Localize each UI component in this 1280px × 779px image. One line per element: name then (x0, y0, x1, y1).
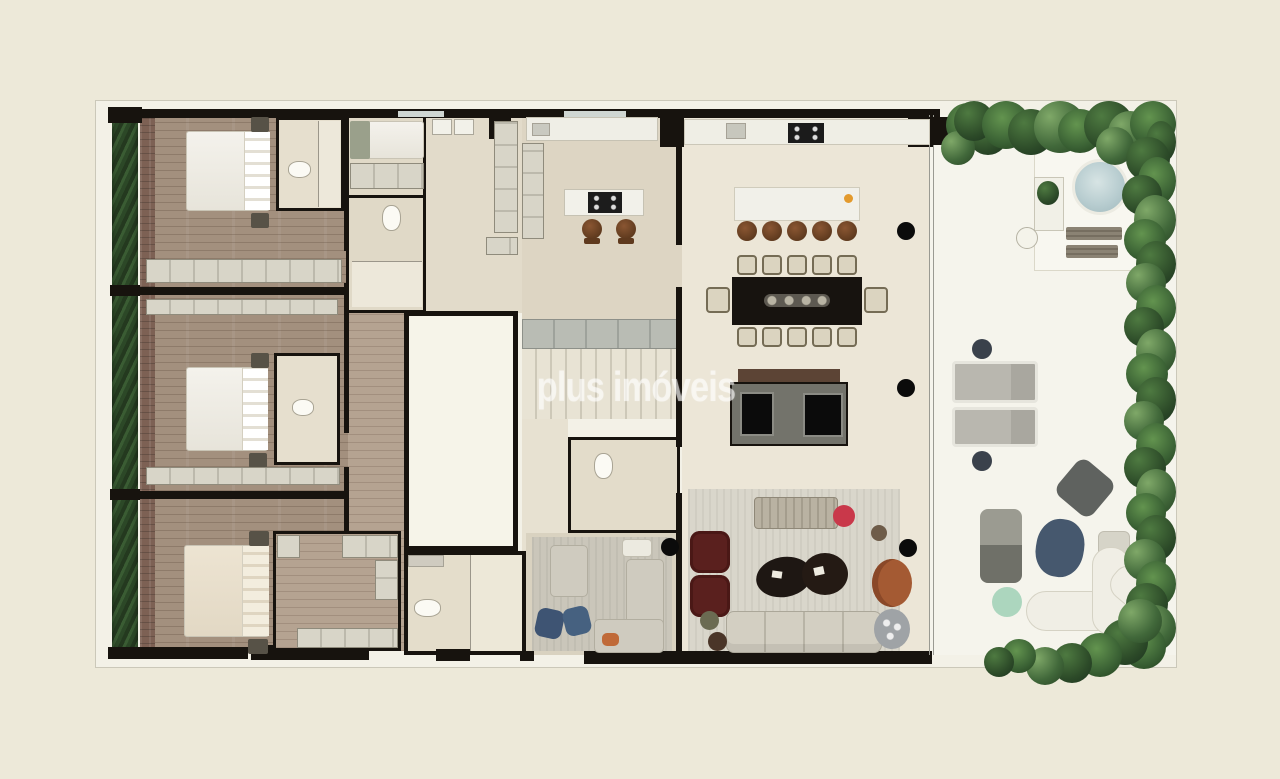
column (899, 539, 917, 557)
sun-lounger (952, 361, 1038, 403)
nightstand (248, 639, 268, 654)
wardrobe-unit (342, 535, 398, 558)
wall-suite-divider-1 (140, 287, 346, 295)
toilet (382, 205, 401, 231)
wall-suite-divider-2 (140, 491, 346, 499)
coffee-table (802, 553, 848, 595)
bar-stool (737, 221, 757, 241)
planter-pot (1016, 227, 1038, 249)
island-stool (582, 219, 602, 239)
stair-cabinet (522, 319, 680, 349)
wall-corridor-1 (344, 115, 349, 251)
ribbed-bench (754, 497, 838, 529)
column (897, 222, 915, 240)
jacuzzi (1072, 159, 1128, 215)
island-stool (616, 219, 636, 239)
kitchen-sink (532, 123, 550, 136)
laundry-counter (486, 237, 518, 255)
dining-chair (737, 327, 757, 347)
dining-chair-end (864, 287, 888, 313)
deck-bench (1066, 245, 1118, 258)
kitchen-tall-cabinets (522, 143, 544, 239)
dining-chair (812, 255, 832, 275)
window-top-1 (398, 111, 444, 117)
floor-plan-screenshot: plus imóveis (0, 0, 1280, 779)
wall-social-1 (676, 115, 682, 245)
side-table (708, 632, 727, 651)
toilet (288, 161, 311, 178)
wardrobe-suite-2-bottom (146, 467, 340, 485)
bed-2-pillows (242, 368, 268, 450)
brick-accent-wall (140, 115, 155, 651)
nightstand (251, 213, 269, 228)
wardrobe-suite-2-top (146, 299, 338, 315)
toilet (292, 399, 314, 416)
side-table (871, 525, 887, 541)
sun-lounger (952, 407, 1038, 447)
wall-garden-tab-2 (110, 489, 140, 500)
decor-object (844, 194, 853, 203)
gourmet-sink (726, 123, 746, 139)
living-sofa (726, 611, 882, 653)
column (661, 538, 679, 556)
service-shower (352, 261, 422, 307)
nightstand (249, 453, 267, 468)
laundry-cabinets (494, 121, 518, 233)
orange-cushion (602, 633, 619, 646)
dining-chair (837, 327, 857, 347)
dining-chair (737, 255, 757, 275)
wall-bottom-4 (520, 651, 534, 661)
wall-corner-nw (108, 107, 142, 123)
column (897, 379, 915, 397)
round-side-table (972, 339, 992, 359)
stool-back (584, 238, 600, 244)
island-cooktop (588, 192, 622, 213)
bar-stool (762, 221, 782, 241)
wardrobe-unit (277, 535, 300, 558)
table-centerpiece (764, 294, 830, 307)
plant (1118, 599, 1162, 643)
red-cushion (833, 505, 855, 527)
powder-room (568, 437, 680, 533)
nightstand (251, 353, 269, 368)
bed-1-pillows (244, 132, 270, 210)
bed-3-pillows (242, 546, 269, 636)
dining-chair (787, 255, 807, 275)
gourmet-cooktop (788, 123, 824, 143)
mint-pouf (992, 587, 1022, 617)
dining-chair (837, 255, 857, 275)
double-height-void (404, 311, 518, 551)
gray-ottoman (874, 609, 910, 649)
outdoor-chaise-seat (980, 545, 1022, 583)
potted-plant (1037, 181, 1059, 205)
shower-center (470, 555, 522, 651)
plant (984, 647, 1014, 677)
dining-chair (762, 255, 782, 275)
wall-garden-tab-1 (110, 285, 140, 296)
bar-stool (837, 221, 857, 241)
dining-chair (812, 327, 832, 347)
wardrobe-unit (375, 560, 398, 600)
bath-sink-counter (408, 555, 444, 567)
tv-room-sofa-module (550, 545, 588, 597)
wall-corridor-2 (344, 283, 349, 433)
bar-counter (734, 187, 860, 221)
armchair-darkred (690, 531, 730, 573)
side-table (700, 611, 719, 630)
toilet (594, 453, 613, 479)
dining-chair (762, 327, 782, 347)
vertical-garden-left (112, 113, 138, 651)
wardrobe-suite-1 (146, 259, 342, 283)
floor-plan: plus imóveis (95, 100, 1177, 668)
deck-bench (1066, 227, 1122, 240)
tv-room-armrest (622, 539, 652, 557)
bar-stool (812, 221, 832, 241)
single-bed-pillow (350, 121, 370, 159)
stool-back (618, 238, 634, 244)
toilet (414, 599, 441, 617)
washer (432, 119, 452, 135)
nightstand (251, 117, 269, 132)
stair-landing (522, 419, 568, 551)
kitchen-floor (522, 115, 682, 333)
bar-stool (787, 221, 807, 241)
dining-chair (787, 327, 807, 347)
book-on-table (772, 570, 783, 578)
wall-bottom-3 (436, 649, 470, 661)
lounge-chair-rust (872, 559, 912, 607)
wall-service-bath (348, 195, 426, 198)
nightstand (249, 531, 269, 546)
dining-chair-end (706, 287, 730, 313)
dryer (454, 119, 474, 135)
round-side-table (972, 451, 992, 471)
shower-1 (318, 121, 340, 207)
sliding-glass-door-track (929, 115, 937, 655)
wardrobe-unit (297, 628, 398, 648)
wall-bottom-1 (108, 647, 248, 659)
service-wardrobe (350, 163, 424, 189)
wall-social-3 (676, 493, 682, 655)
outdoor-chaise-top (980, 509, 1022, 545)
tv-screen (803, 393, 843, 437)
watermark: plus imóveis (505, 363, 767, 411)
